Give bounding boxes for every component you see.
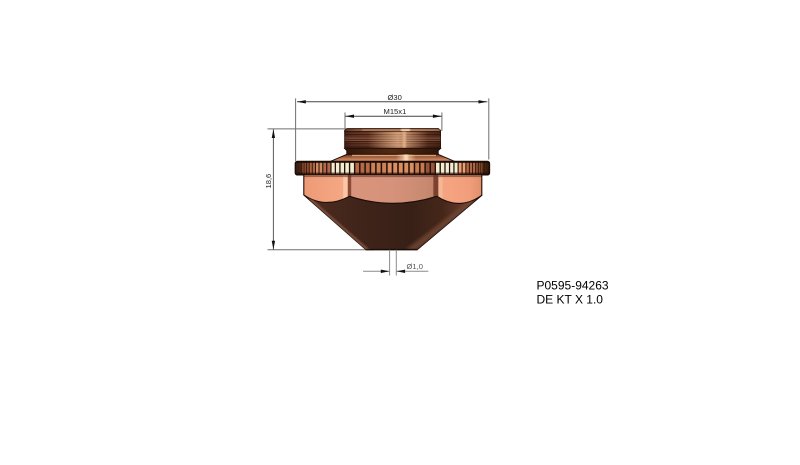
svg-text:DE KT X 1.0: DE KT X 1.0	[537, 293, 604, 307]
svg-text:M15x1: M15x1	[384, 107, 407, 116]
svg-text:Ø1,0: Ø1,0	[407, 262, 423, 271]
svg-text:18,6: 18,6	[264, 174, 273, 189]
svg-text:Ø30: Ø30	[388, 93, 402, 102]
svg-text:P0595-94263: P0595-94263	[537, 278, 609, 292]
